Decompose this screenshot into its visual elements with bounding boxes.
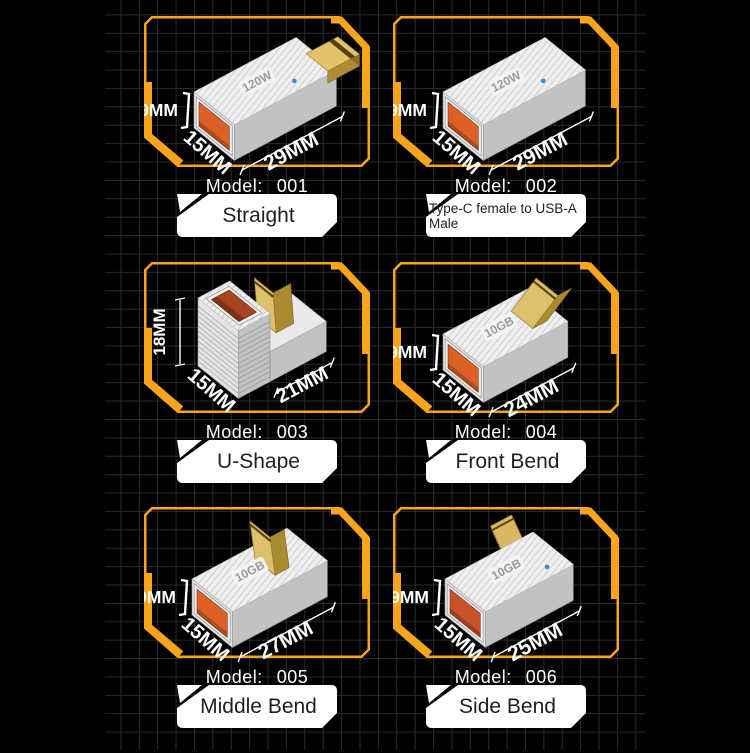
height-bracket xyxy=(430,93,438,128)
height-bracket xyxy=(181,93,189,128)
product-sheet: 120W9MM15MM29MM Model:001 Straight 120W9… xyxy=(0,0,750,750)
adapter-illustration: 10GB9MM15MM25MM xyxy=(393,515,619,685)
led-indicator xyxy=(545,565,550,570)
adapter-panel-001: 120W9MM15MM29MM Model:001 Straight xyxy=(144,16,370,262)
dim-height: 9MM xyxy=(144,100,178,120)
name-plate-label: Side Bend xyxy=(429,685,586,729)
dim-height: 9MM xyxy=(393,587,429,607)
name-plate-label: Front Bend xyxy=(429,440,586,484)
height-bracket xyxy=(432,580,440,615)
adapter-panel-004: 10GB9MM15MM24MM Model:004 Front Bend xyxy=(393,262,619,508)
name-plate: Straight xyxy=(174,193,339,238)
name-plate: Middle Bend xyxy=(174,684,339,729)
adapter-panel-002: 120W9MM15MM29MM Model:002 Type-C female … xyxy=(393,16,619,262)
adapter-illustration: 18MM15MM21MM xyxy=(144,270,370,440)
adapter-illustration: 10GB9MM15MM27MM xyxy=(144,515,370,685)
name-plate: Front Bend xyxy=(423,439,588,484)
dim-height: 9MM xyxy=(393,100,427,120)
dim-height: 18MM xyxy=(150,308,169,355)
dim-height: 9MM xyxy=(144,587,176,607)
adapter-panel-005: 10GB9MM15MM27MM Model:005 Middle Bend xyxy=(144,507,370,753)
adapter-illustration: 10GB9MM15MM24MM xyxy=(393,270,619,440)
adapter-panel-006: 10GB9MM15MM25MM Model:006 Side Bend xyxy=(393,507,619,753)
name-plate: Side Bend xyxy=(423,684,588,729)
name-plate-label: U-Shape xyxy=(180,440,337,484)
adapter-panel-003: 18MM15MM21MM Model:003 U-Shape xyxy=(144,262,370,508)
adapter-illustration: 120W9MM15MM29MM xyxy=(144,24,370,194)
name-plate-label: Type-C female to USB-A Male xyxy=(429,194,586,238)
name-plate-label: Middle Bend xyxy=(180,685,337,729)
led-indicator xyxy=(541,79,546,84)
led-indicator xyxy=(292,79,297,84)
height-bracket xyxy=(179,580,187,615)
name-plate-label: Straight xyxy=(180,194,337,238)
height-bracket xyxy=(430,335,438,370)
dim-height: 9MM xyxy=(393,342,427,362)
adapter-illustration: 120W9MM15MM29MM xyxy=(393,24,619,194)
name-plate: Type-C female to USB-A Male xyxy=(423,193,588,238)
name-plate: U-Shape xyxy=(174,439,339,484)
